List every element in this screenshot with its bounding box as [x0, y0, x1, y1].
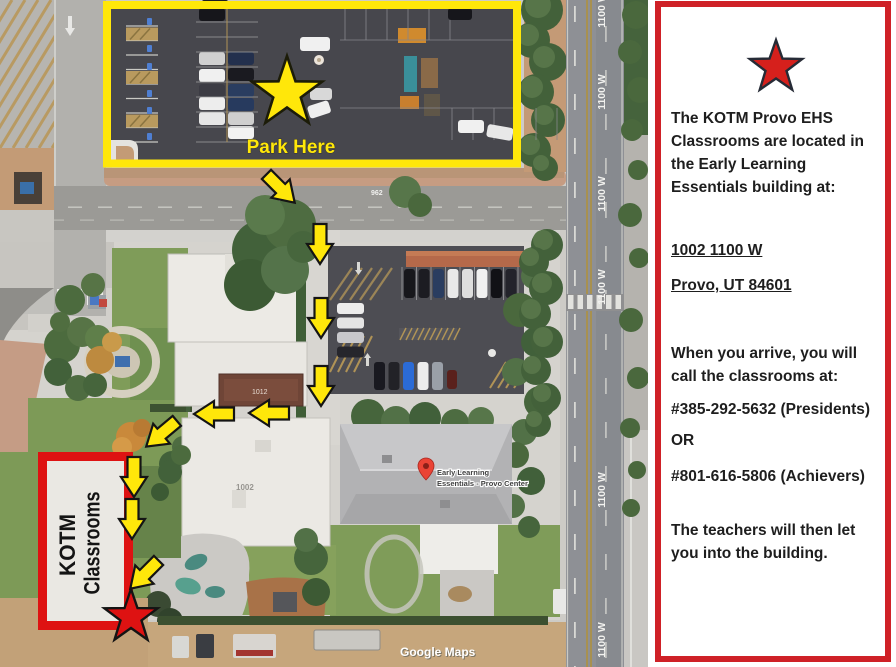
svg-text:1100 W: 1100 W — [596, 176, 608, 212]
svg-text:Park Here: Park Here — [247, 137, 336, 158]
svg-text:Google Maps: Google Maps — [400, 645, 476, 659]
svg-text:1100 W: 1100 W — [596, 622, 608, 658]
svg-text:1100 W: 1100 W — [596, 0, 608, 28]
svg-text:Classrooms: Classrooms — [80, 492, 105, 595]
svg-text:962: 962 — [371, 190, 383, 197]
svg-text:KOTM: KOTM — [55, 514, 80, 576]
svg-text:1100 W: 1100 W — [596, 472, 608, 508]
svg-text:Essentials - Provo Center: Essentials - Provo Center — [437, 479, 528, 488]
svg-text:1002: 1002 — [236, 483, 254, 492]
svg-text:1100 W: 1100 W — [596, 269, 608, 305]
svg-text:1100 W: 1100 W — [596, 74, 608, 110]
svg-text:1012: 1012 — [252, 389, 268, 396]
svg-text:Early Learning: Early Learning — [437, 468, 490, 477]
